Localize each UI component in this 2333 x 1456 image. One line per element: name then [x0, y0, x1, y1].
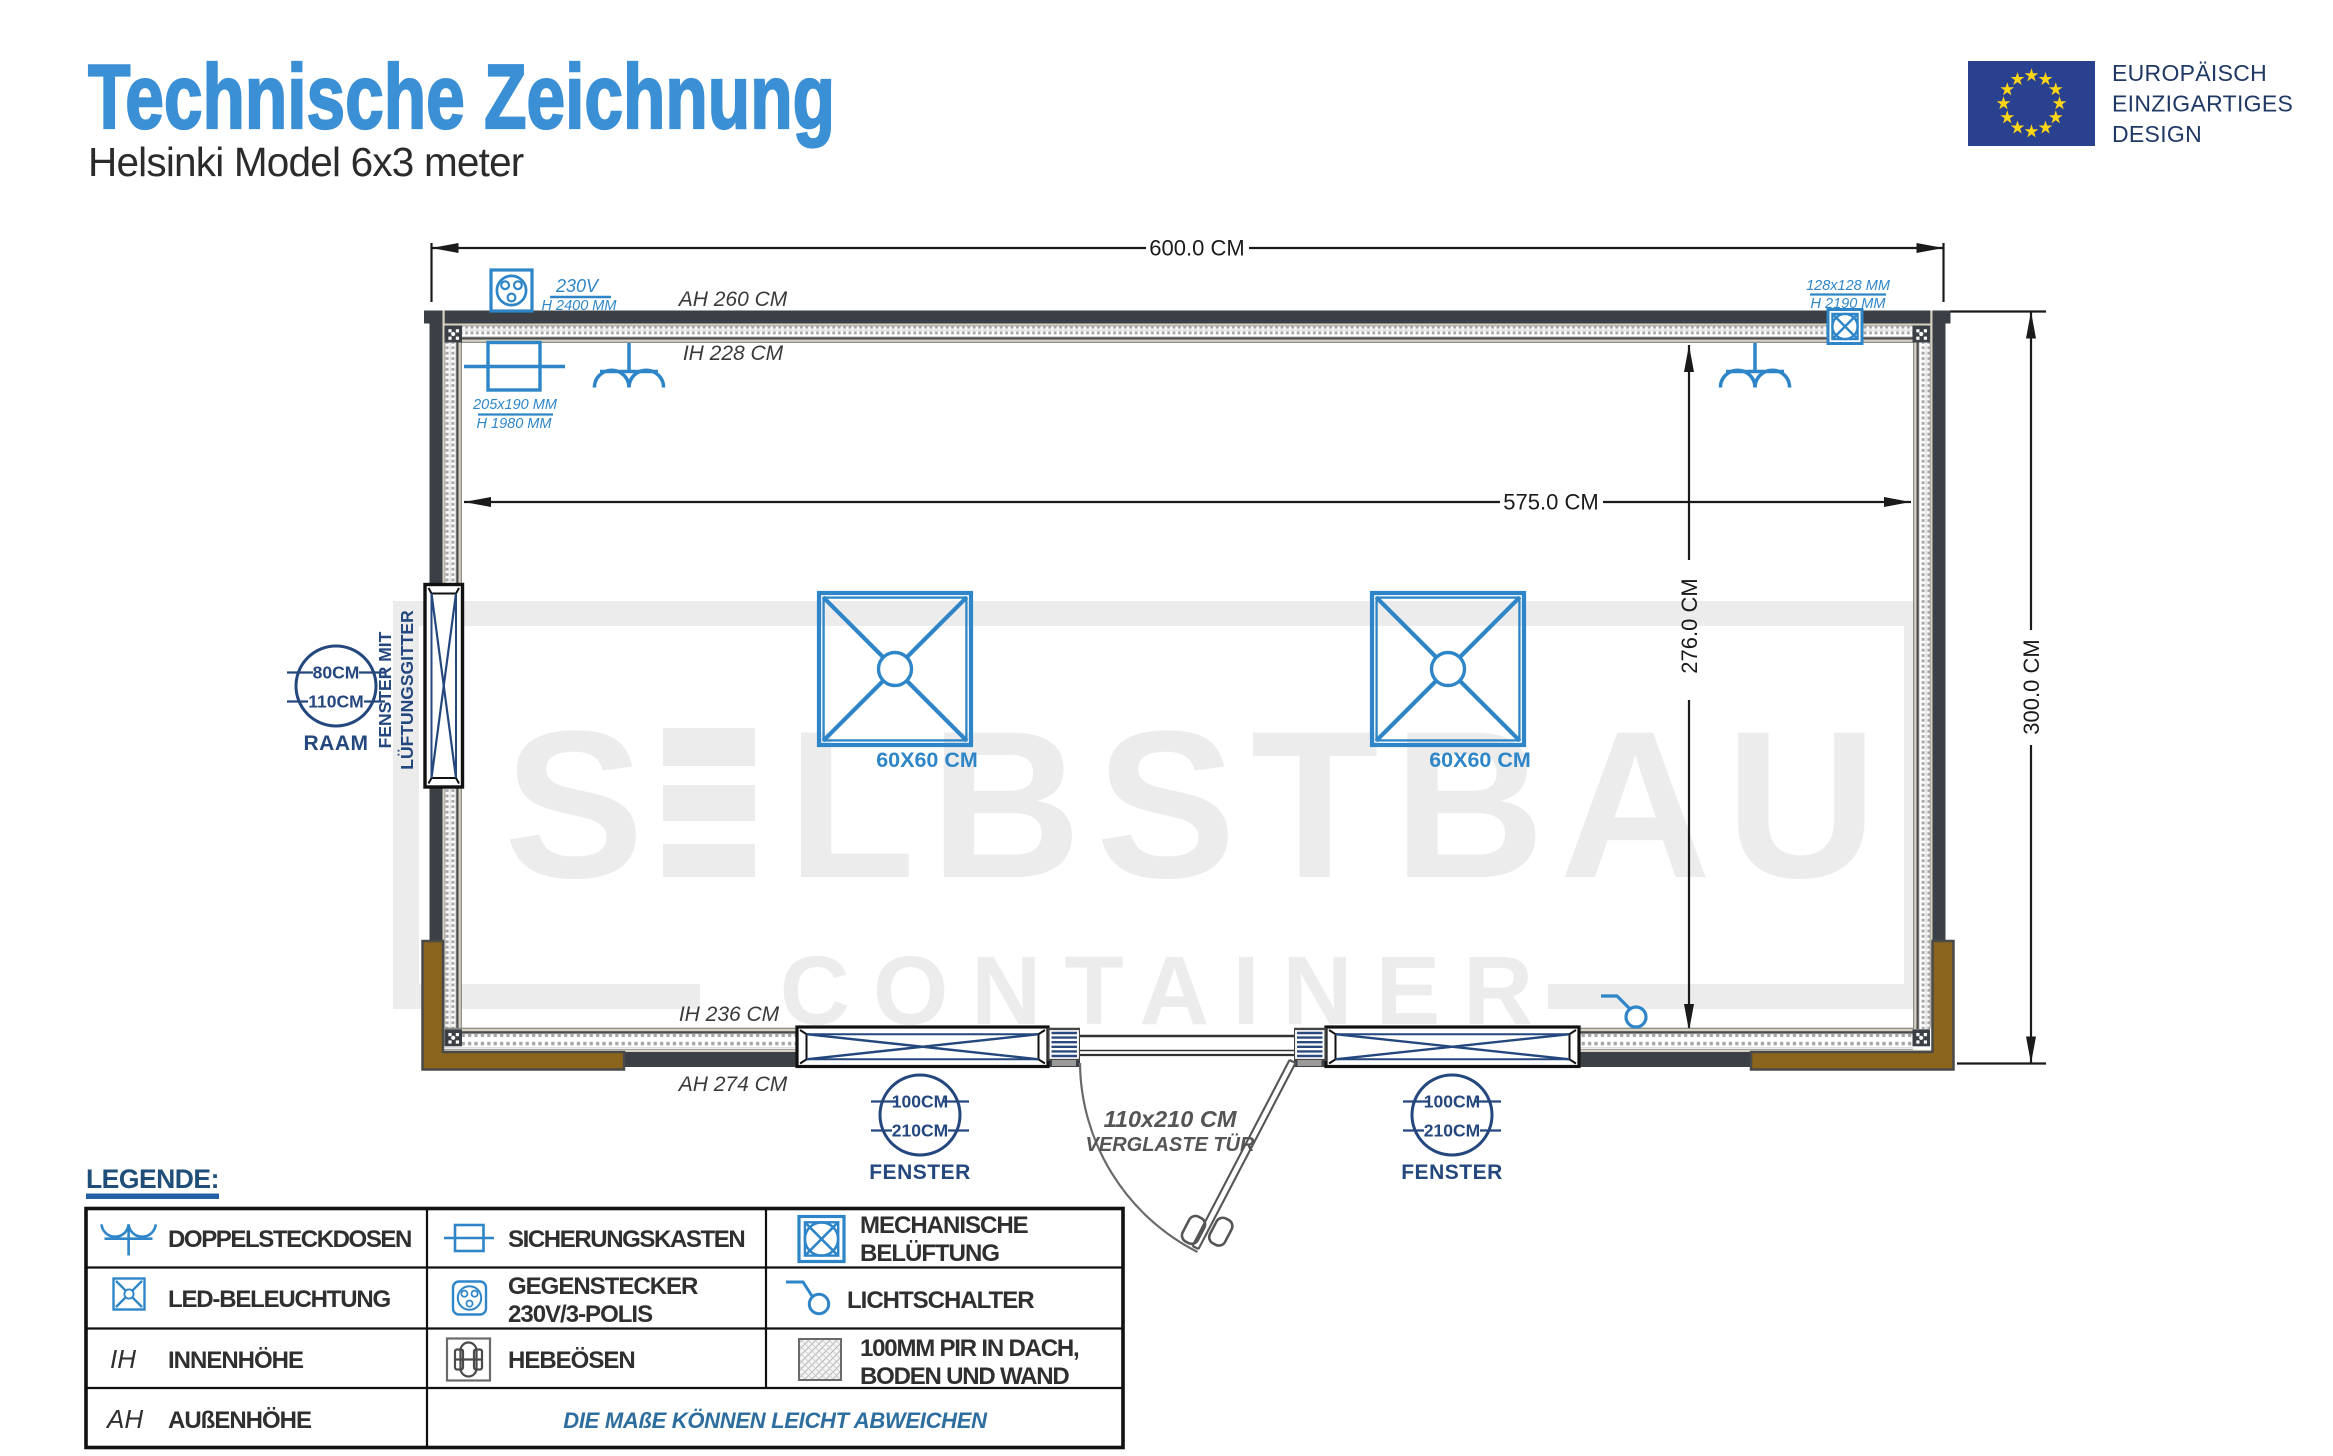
svg-text:EINZIGARTIGES: EINZIGARTIGES	[2112, 91, 2293, 117]
svg-text:LBSTBAU: LBSTBAU	[787, 687, 1892, 922]
svg-text:128x128 MM: 128x128 MM	[1806, 278, 1891, 294]
svg-text:100MM PIR IN DACH,: 100MM PIR IN DACH,	[860, 1335, 1079, 1362]
svg-text:210CM: 210CM	[892, 1121, 948, 1141]
svg-text:EUROPÄISCH: EUROPÄISCH	[2112, 60, 2267, 86]
svg-text:HEBEÖSEN: HEBEÖSEN	[508, 1347, 635, 1374]
svg-text:LÜFTUNGSGITTER: LÜFTUNGSGITTER	[397, 610, 417, 770]
svg-text:110CM: 110CM	[308, 692, 363, 712]
svg-text:H 2190 MM: H 2190 MM	[1811, 296, 1887, 312]
svg-text:BELÜFTUNG: BELÜFTUNG	[860, 1240, 999, 1267]
svg-text:575.0 CM: 575.0 CM	[1503, 490, 1598, 515]
svg-text:FENSTER MIT: FENSTER MIT	[375, 631, 395, 748]
svg-text:IH: IH	[110, 1344, 136, 1374]
svg-text:LICHTSCHALTER: LICHTSCHALTER	[847, 1287, 1034, 1314]
svg-text:600.0 CM: 600.0 CM	[1149, 236, 1244, 261]
svg-text:300.0 CM: 300.0 CM	[2019, 639, 2044, 734]
svg-text:IH 236 CM: IH 236 CM	[679, 1003, 780, 1026]
svg-text:100CM: 100CM	[1424, 1092, 1480, 1112]
svg-text:AH 260 CM: AH 260 CM	[677, 288, 788, 311]
svg-text:LEGENDE:: LEGENDE:	[86, 1164, 219, 1194]
svg-text:FENSTER: FENSTER	[1401, 1161, 1503, 1184]
svg-text:BODEN UND WAND: BODEN UND WAND	[860, 1363, 1069, 1390]
svg-text:210CM: 210CM	[1424, 1121, 1480, 1141]
svg-text:MECHANISCHE: MECHANISCHE	[860, 1212, 1029, 1239]
svg-text:205x190 MM: 205x190 MM	[472, 397, 558, 413]
svg-text:RAAM: RAAM	[304, 732, 369, 755]
svg-text:H 2400 MM: H 2400 MM	[542, 298, 618, 314]
svg-text:VERGLASTE TÜR: VERGLASTE TÜR	[1086, 1133, 1255, 1156]
svg-text:FENSTER: FENSTER	[869, 1161, 971, 1184]
svg-text:60X60 CM: 60X60 CM	[1429, 748, 1531, 772]
svg-text:Helsinki Model 6x3 meter: Helsinki Model 6x3 meter	[88, 139, 524, 185]
svg-text:Technische Zeichnung: Technische Zeichnung	[88, 47, 835, 148]
svg-text:AH: AH	[105, 1404, 143, 1434]
svg-text:SICHERUNGSKASTEN: SICHERUNGSKASTEN	[508, 1226, 744, 1253]
svg-text:DESIGN: DESIGN	[2112, 121, 2202, 147]
svg-text:GEGENSTECKER: GEGENSTECKER	[508, 1273, 698, 1300]
svg-text:AUßENHÖHE: AUßENHÖHE	[168, 1407, 312, 1434]
svg-text:LED-BELEUCHTUNG: LED-BELEUCHTUNG	[168, 1286, 391, 1313]
svg-text:100CM: 100CM	[892, 1092, 948, 1112]
svg-text:AH 274 CM: AH 274 CM	[677, 1073, 788, 1096]
svg-text:80CM: 80CM	[313, 663, 360, 683]
svg-text:230V/3-POLIS: 230V/3-POLIS	[508, 1301, 653, 1328]
svg-text:276.0 CM: 276.0 CM	[1677, 578, 1702, 673]
svg-text:INNENHÖHE: INNENHÖHE	[168, 1347, 304, 1374]
svg-text:H 1980 MM: H 1980 MM	[477, 416, 553, 432]
svg-text:S: S	[504, 687, 656, 922]
svg-text:60X60 CM: 60X60 CM	[876, 748, 978, 772]
svg-text:110x210 CM: 110x210 CM	[1104, 1106, 1237, 1132]
svg-text:DOPPELSTECKDOSEN: DOPPELSTECKDOSEN	[168, 1226, 411, 1253]
svg-text:DIE MAßE KÖNNEN LEICHT ABWEICH: DIE MAßE KÖNNEN LEICHT ABWEICHEN	[563, 1408, 988, 1433]
svg-text:IH 228 CM: IH 228 CM	[683, 342, 784, 365]
svg-text:230V: 230V	[555, 276, 600, 296]
